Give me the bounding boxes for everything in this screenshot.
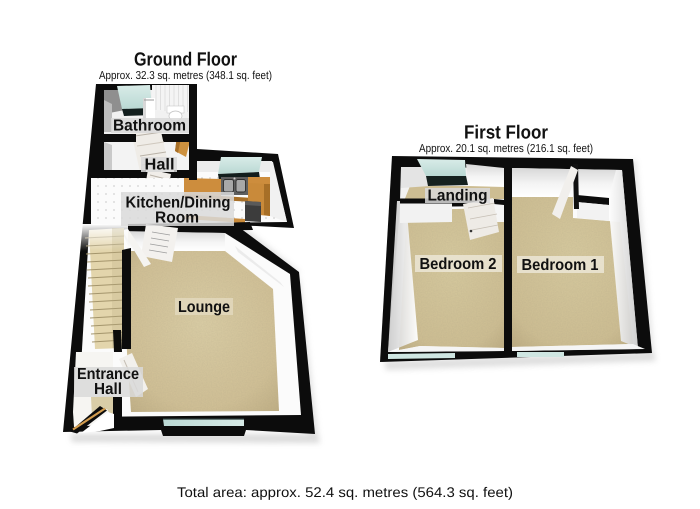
- svg-text:Bathroom: Bathroom: [113, 118, 186, 135]
- svg-text:Hall: Hall: [145, 157, 175, 174]
- svg-text:Hall: Hall: [94, 381, 122, 398]
- svg-text:Total area: approx. 52.4 sq. m: Total area: approx. 52.4 sq. metres (564…: [177, 484, 513, 500]
- svg-text:Lounge: Lounge: [178, 299, 230, 316]
- svg-text:Approx. 20.1 sq. metres (216.1: Approx. 20.1 sq. metres (216.1 sq. feet): [419, 143, 593, 155]
- svg-text:Room: Room: [155, 210, 199, 227]
- svg-text:Ground Floor: Ground Floor: [134, 50, 238, 71]
- svg-text:First Floor: First Floor: [464, 123, 549, 144]
- svg-text:Approx. 32.3 sq. metres (348.1: Approx. 32.3 sq. metres (348.1 sq. feet): [99, 70, 272, 82]
- svg-text:Bedroom 1: Bedroom 1: [522, 257, 599, 274]
- svg-text:Landing: Landing: [428, 188, 488, 205]
- svg-text:Bedroom 2: Bedroom 2: [420, 256, 497, 273]
